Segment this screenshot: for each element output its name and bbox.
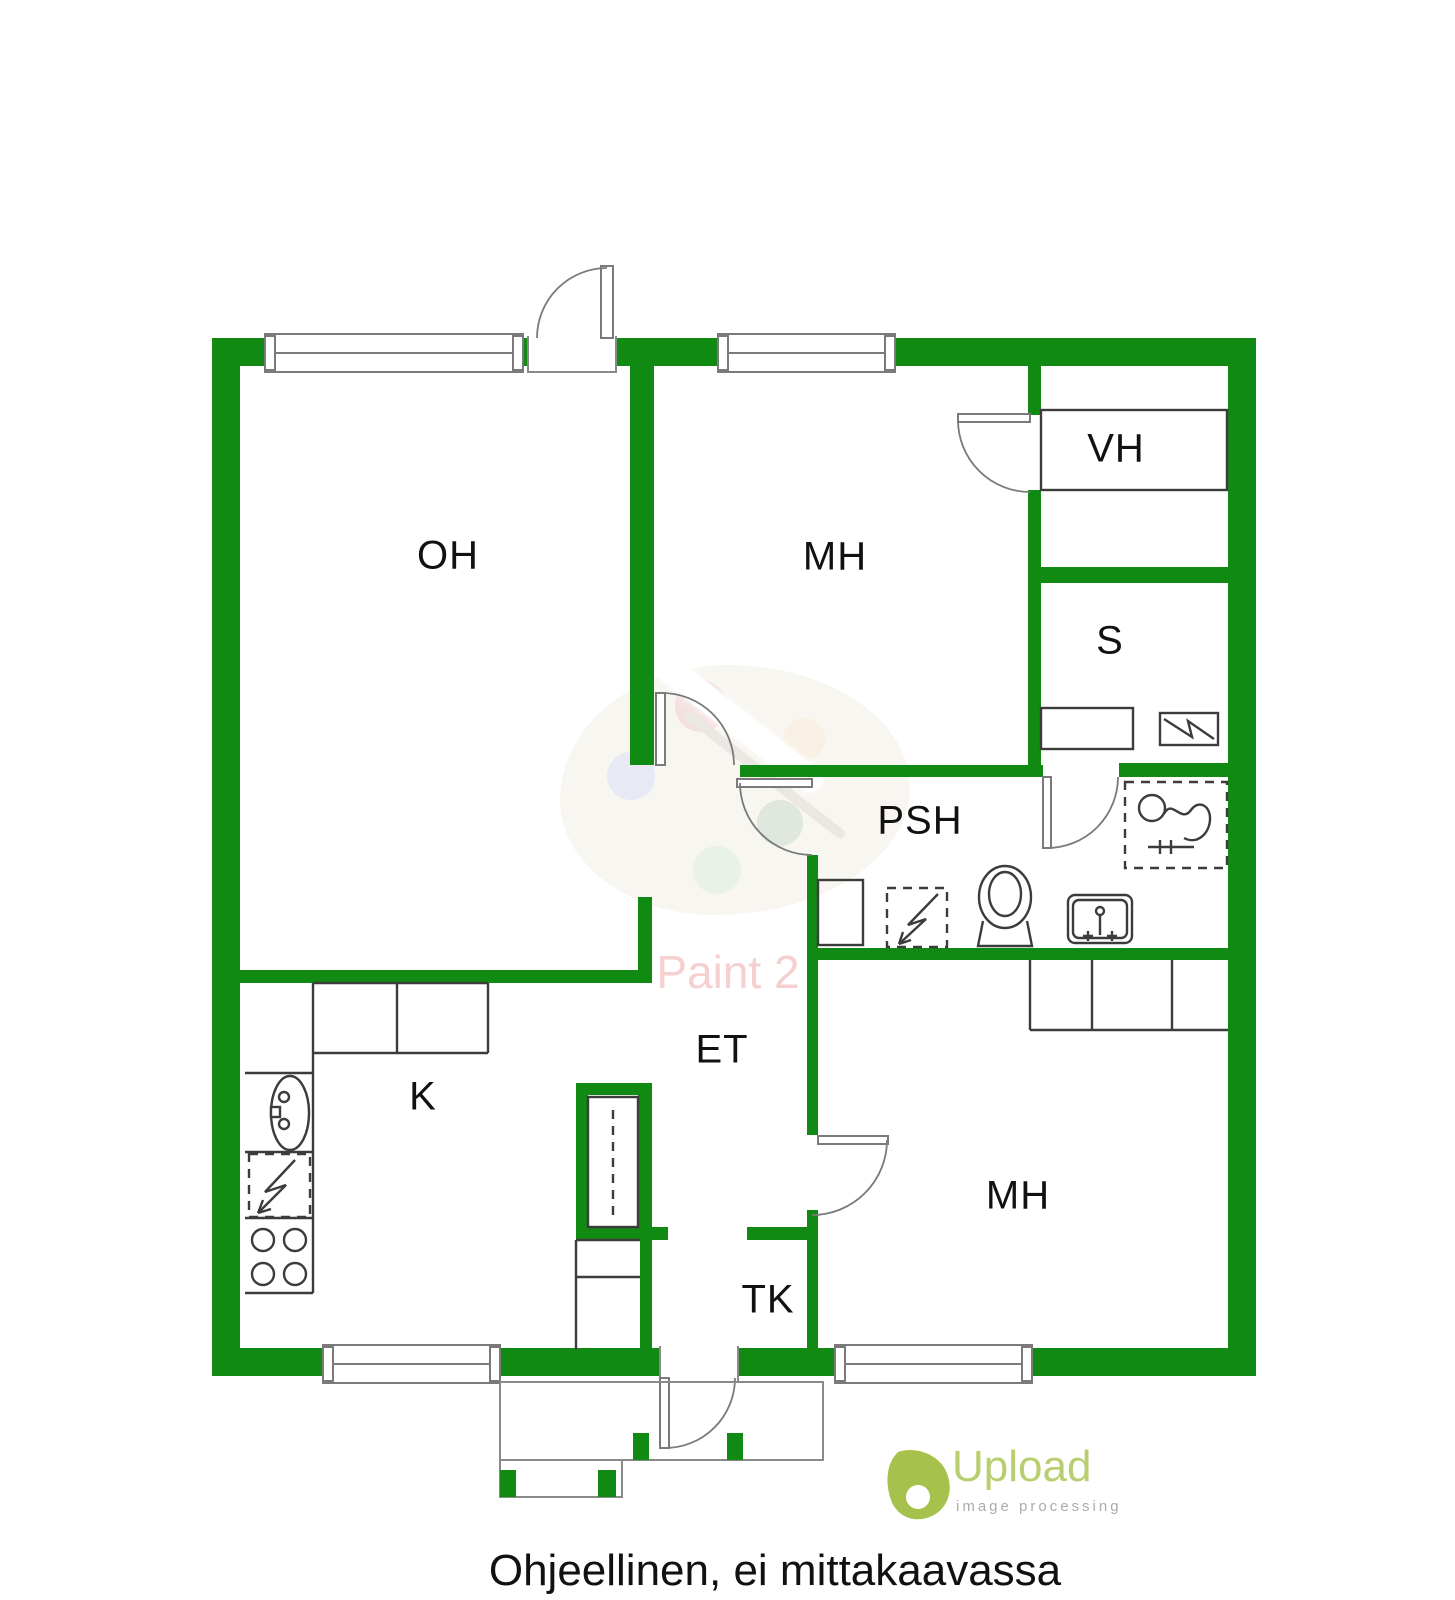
- kitchen-counter: [245, 983, 488, 1293]
- shower-icon: [1125, 782, 1227, 868]
- upload-drop-icon: [880, 1440, 955, 1530]
- washroom-cabinet: [818, 880, 863, 945]
- door-bedroom-bottom: [812, 1136, 888, 1215]
- window-bedroom-bottom: [835, 1345, 1032, 1383]
- door-bedroom-top: [656, 693, 734, 765]
- washing-machine-icon: [887, 888, 947, 947]
- outer-walls: [212, 338, 1256, 1376]
- room-label-hallway: ET: [695, 1028, 748, 1073]
- window-kitchen: [323, 1345, 500, 1383]
- bedroom-wardrobe: [1030, 960, 1228, 1030]
- toilet-icon: [978, 866, 1032, 946]
- door-walkin-closet: [958, 414, 1030, 492]
- door-balcony: [537, 266, 613, 338]
- door-sauna: [1043, 777, 1118, 848]
- upload-brand-text: Upload: [952, 1442, 1091, 1492]
- paint2-watermark: Paint 2: [656, 945, 799, 999]
- floor-plan: OH MH VH S PSH ET K TK MH Paint 2 Upload…: [0, 0, 1455, 1600]
- interior-walls: [240, 366, 1228, 1352]
- room-label-walkin-closet: VH: [1087, 427, 1145, 472]
- floor-plan-drawing: [0, 0, 1455, 1600]
- stove-icon: [252, 1229, 306, 1285]
- upload-subtitle-text: image processing: [956, 1498, 1122, 1515]
- dishwasher-icon: [249, 1154, 310, 1217]
- room-label-washroom: PSH: [877, 799, 962, 844]
- hall-wardrobe: [588, 1097, 638, 1227]
- plan-caption: Ohjeellinen, ei mittakaavassa: [489, 1546, 1061, 1596]
- window-living-room: [265, 334, 523, 372]
- room-label-bedroom-top: MH: [803, 535, 867, 580]
- room-label-vestibule: TK: [741, 1278, 794, 1323]
- fridge-cabinet: [576, 1240, 640, 1350]
- room-label-kitchen: K: [409, 1075, 437, 1120]
- room-label-bedroom-bottom: MH: [986, 1174, 1050, 1219]
- sauna-bench: [1041, 708, 1133, 749]
- washbasin-icon: [1068, 895, 1132, 943]
- door-entrance: [660, 1378, 735, 1448]
- room-label-sauna: S: [1096, 619, 1124, 664]
- window-bedroom-top: [718, 334, 895, 372]
- kitchen-sink-icon: [271, 1076, 309, 1150]
- door-washroom: [737, 779, 812, 855]
- sauna-heater-icon: [1160, 713, 1218, 745]
- upload-logo: Upload image processing: [880, 1440, 1140, 1530]
- room-label-living-room: OH: [417, 534, 479, 579]
